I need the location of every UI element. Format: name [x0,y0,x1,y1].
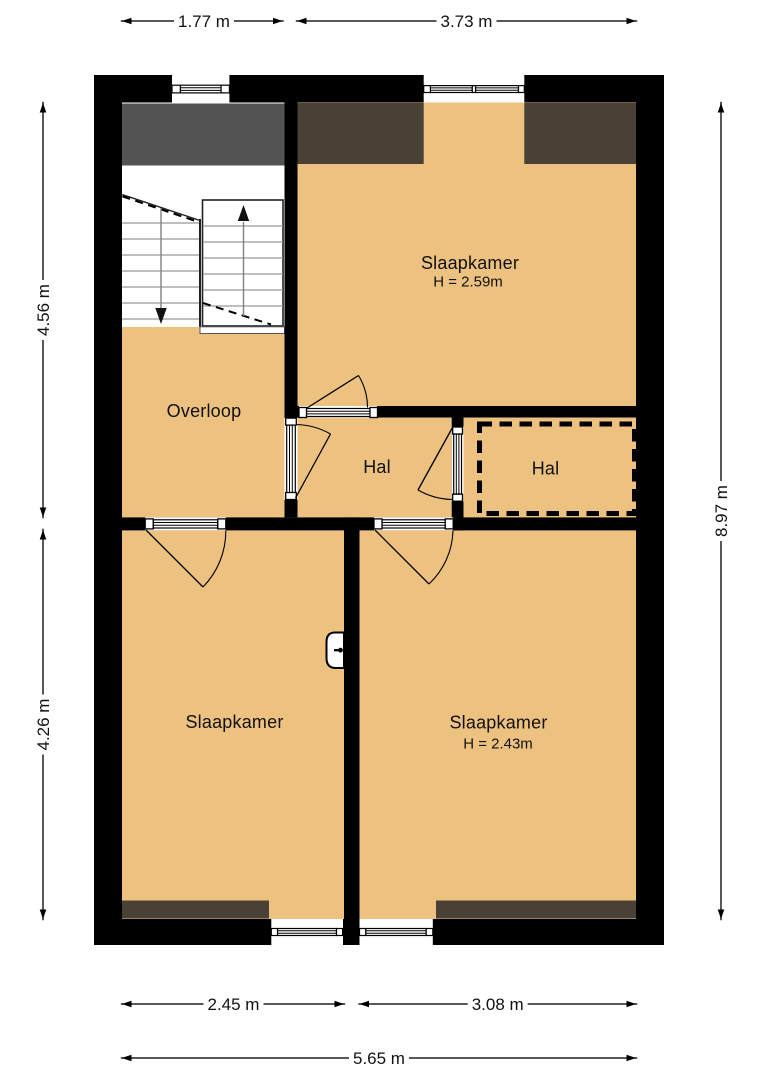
svg-text:Hal: Hal [532,459,560,479]
svg-text:3.08 m: 3.08 m [472,995,524,1014]
svg-text:4.26 m: 4.26 m [34,699,53,751]
svg-text:Slaapkamer: Slaapkamer [421,253,519,273]
svg-text:Slaapkamer: Slaapkamer [185,712,283,732]
svg-text:Hal: Hal [363,457,391,477]
svg-text:Slaapkamer: Slaapkamer [449,713,547,733]
svg-text:H = 2.59m: H = 2.59m [433,274,503,291]
svg-text:5.65 m: 5.65 m [353,1049,405,1068]
svg-text:Overloop: Overloop [167,401,242,421]
svg-text:H = 2.43m: H = 2.43m [463,736,533,753]
svg-text:3.73 m: 3.73 m [441,12,493,31]
svg-text:4.56 m: 4.56 m [34,284,53,336]
svg-text:8.97 m: 8.97 m [712,485,731,537]
svg-text:1.77 m: 1.77 m [178,12,230,31]
svg-text:2.45 m: 2.45 m [208,995,260,1014]
